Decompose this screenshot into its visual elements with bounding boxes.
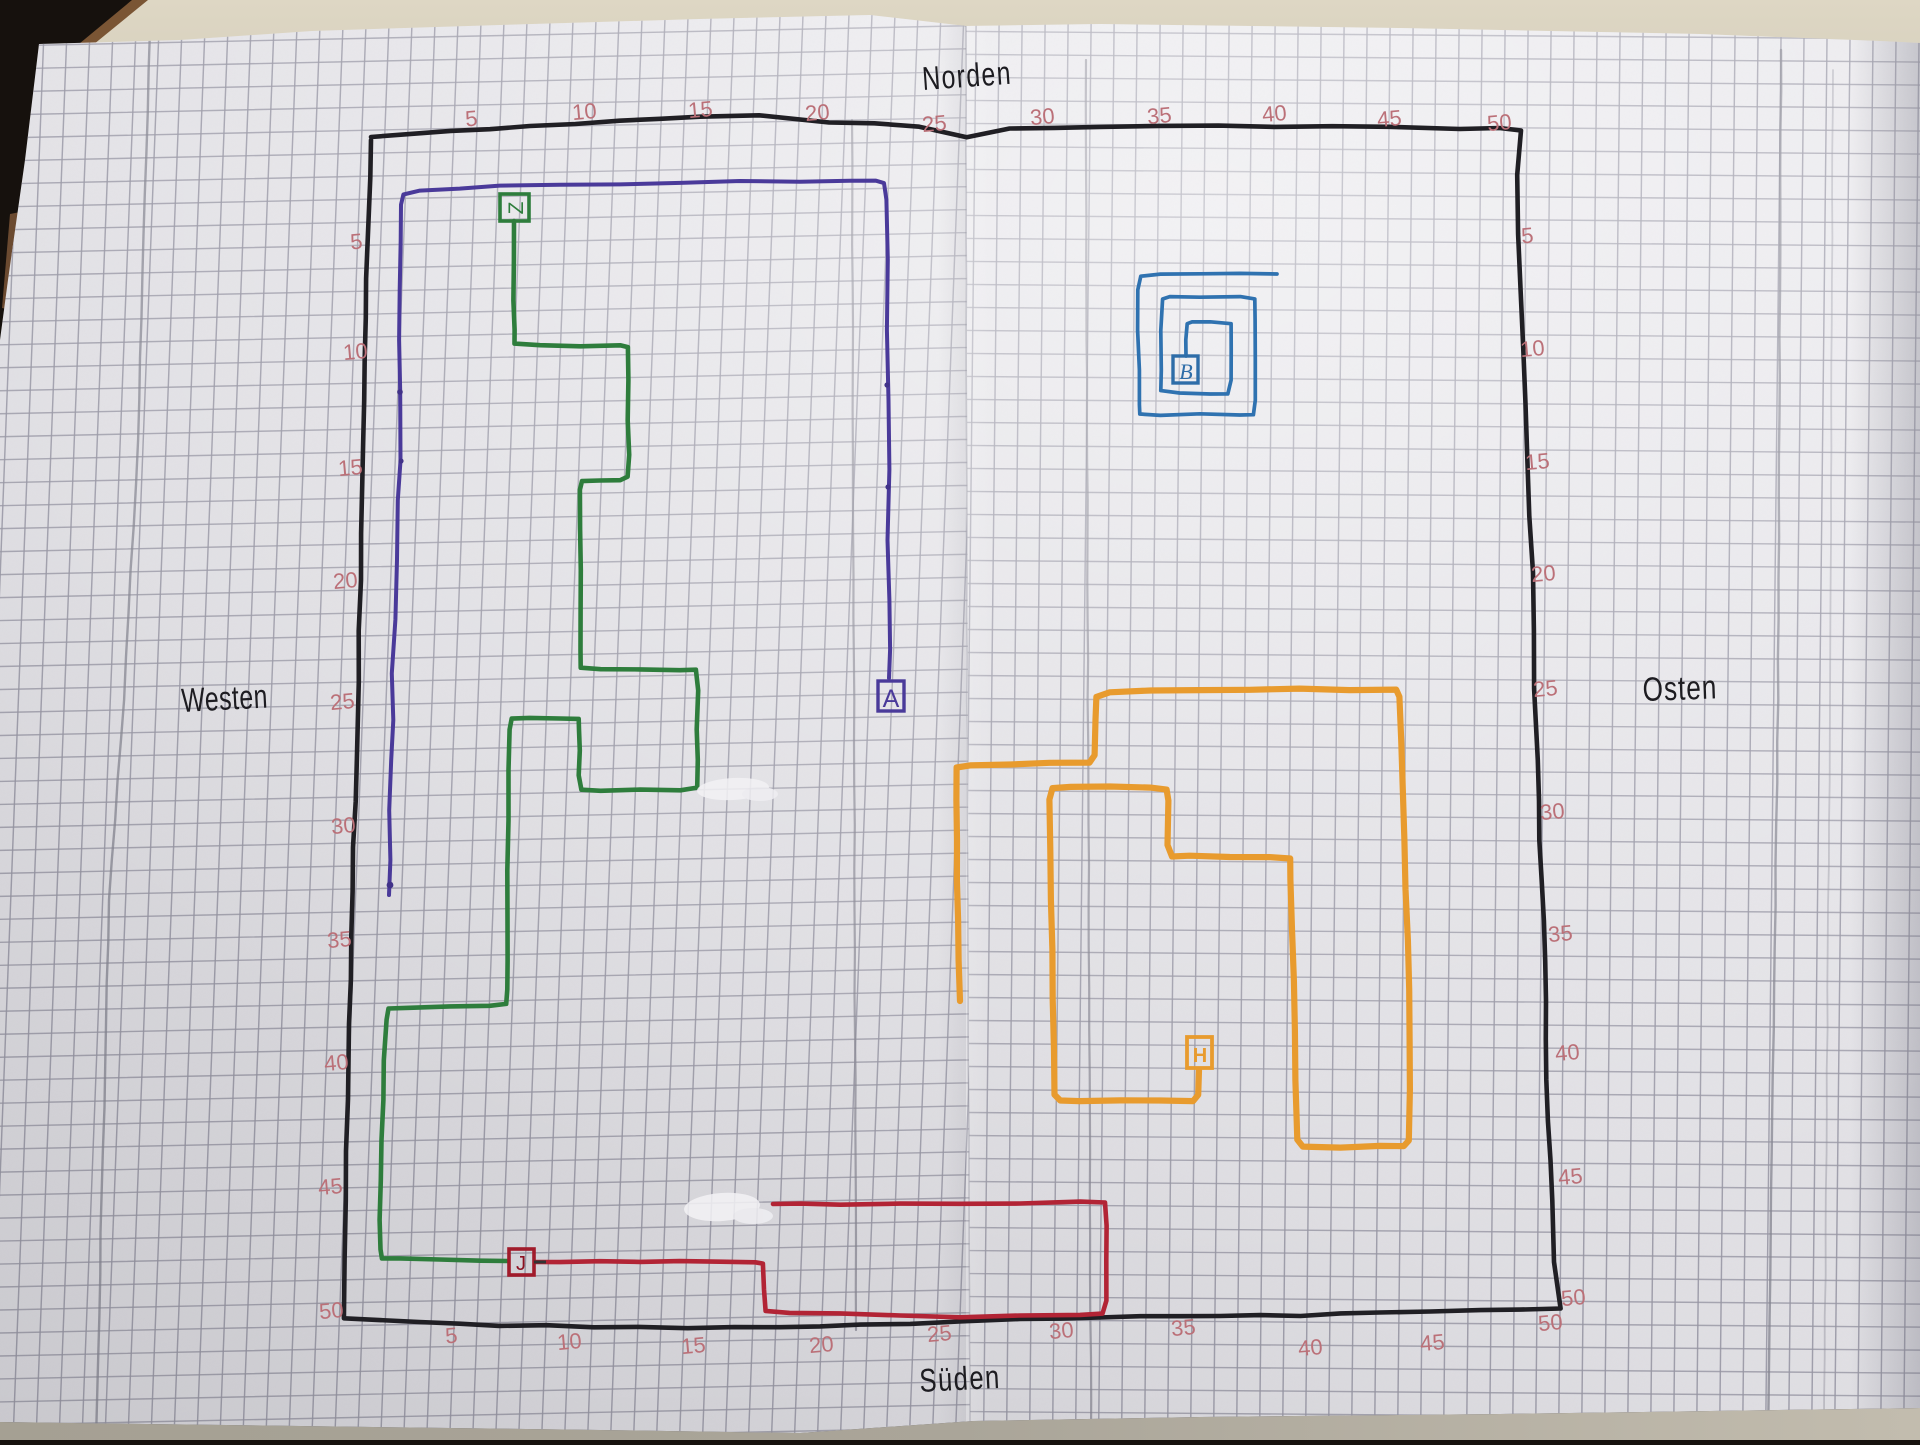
svg-text:35: 35	[1146, 102, 1173, 129]
svg-text:35: 35	[1547, 920, 1574, 947]
svg-text:25: 25	[329, 688, 356, 715]
svg-text:10: 10	[1519, 335, 1546, 362]
svg-text:B: B	[1179, 359, 1192, 384]
svg-text:A: A	[883, 685, 900, 713]
svg-text:40: 40	[1297, 1334, 1324, 1361]
svg-text:10: 10	[342, 338, 369, 365]
svg-text:50: 50	[318, 1297, 345, 1324]
svg-text:30: 30	[330, 812, 357, 839]
svg-text:15: 15	[687, 96, 714, 123]
svg-text:50: 50	[1537, 1309, 1564, 1336]
svg-text:35: 35	[326, 926, 353, 953]
svg-text:20: 20	[808, 1331, 835, 1358]
svg-text:30: 30	[1029, 103, 1056, 130]
svg-text:45: 45	[1419, 1329, 1446, 1356]
svg-text:15: 15	[680, 1332, 707, 1359]
svg-text:5: 5	[349, 229, 363, 255]
svg-text:Osten: Osten	[1642, 669, 1718, 708]
svg-text:30: 30	[1539, 798, 1566, 825]
svg-text:Norden: Norden	[921, 56, 1013, 98]
svg-text:5: 5	[444, 1323, 458, 1349]
svg-text:J: J	[516, 1253, 526, 1275]
svg-text:20: 20	[804, 99, 831, 126]
svg-text:20: 20	[1530, 560, 1557, 587]
svg-text:45: 45	[1376, 105, 1403, 132]
svg-text:25: 25	[926, 1320, 953, 1347]
svg-text:Z: Z	[505, 201, 528, 214]
svg-text:30: 30	[1048, 1317, 1075, 1344]
svg-text:20: 20	[332, 567, 359, 594]
svg-text:15: 15	[1524, 448, 1551, 475]
svg-text:50: 50	[1560, 1284, 1587, 1311]
svg-text:45: 45	[317, 1173, 344, 1200]
svg-text:25: 25	[1532, 675, 1559, 702]
svg-text:5: 5	[464, 106, 478, 132]
svg-text:H: H	[1193, 1045, 1207, 1067]
svg-text:35: 35	[1170, 1314, 1197, 1341]
svg-text:10: 10	[556, 1328, 583, 1355]
svg-text:45: 45	[1557, 1163, 1584, 1190]
svg-text:40: 40	[1554, 1039, 1581, 1066]
svg-text:10: 10	[571, 98, 598, 125]
svg-text:40: 40	[323, 1049, 350, 1076]
svg-text:25: 25	[921, 110, 948, 137]
svg-text:50: 50	[1486, 109, 1513, 136]
svg-text:5: 5	[1520, 223, 1534, 249]
svg-text:15: 15	[337, 454, 364, 481]
svg-text:Westen: Westen	[180, 678, 268, 720]
svg-text:40: 40	[1261, 100, 1288, 127]
svg-text:Süden: Süden	[918, 1359, 1001, 1400]
